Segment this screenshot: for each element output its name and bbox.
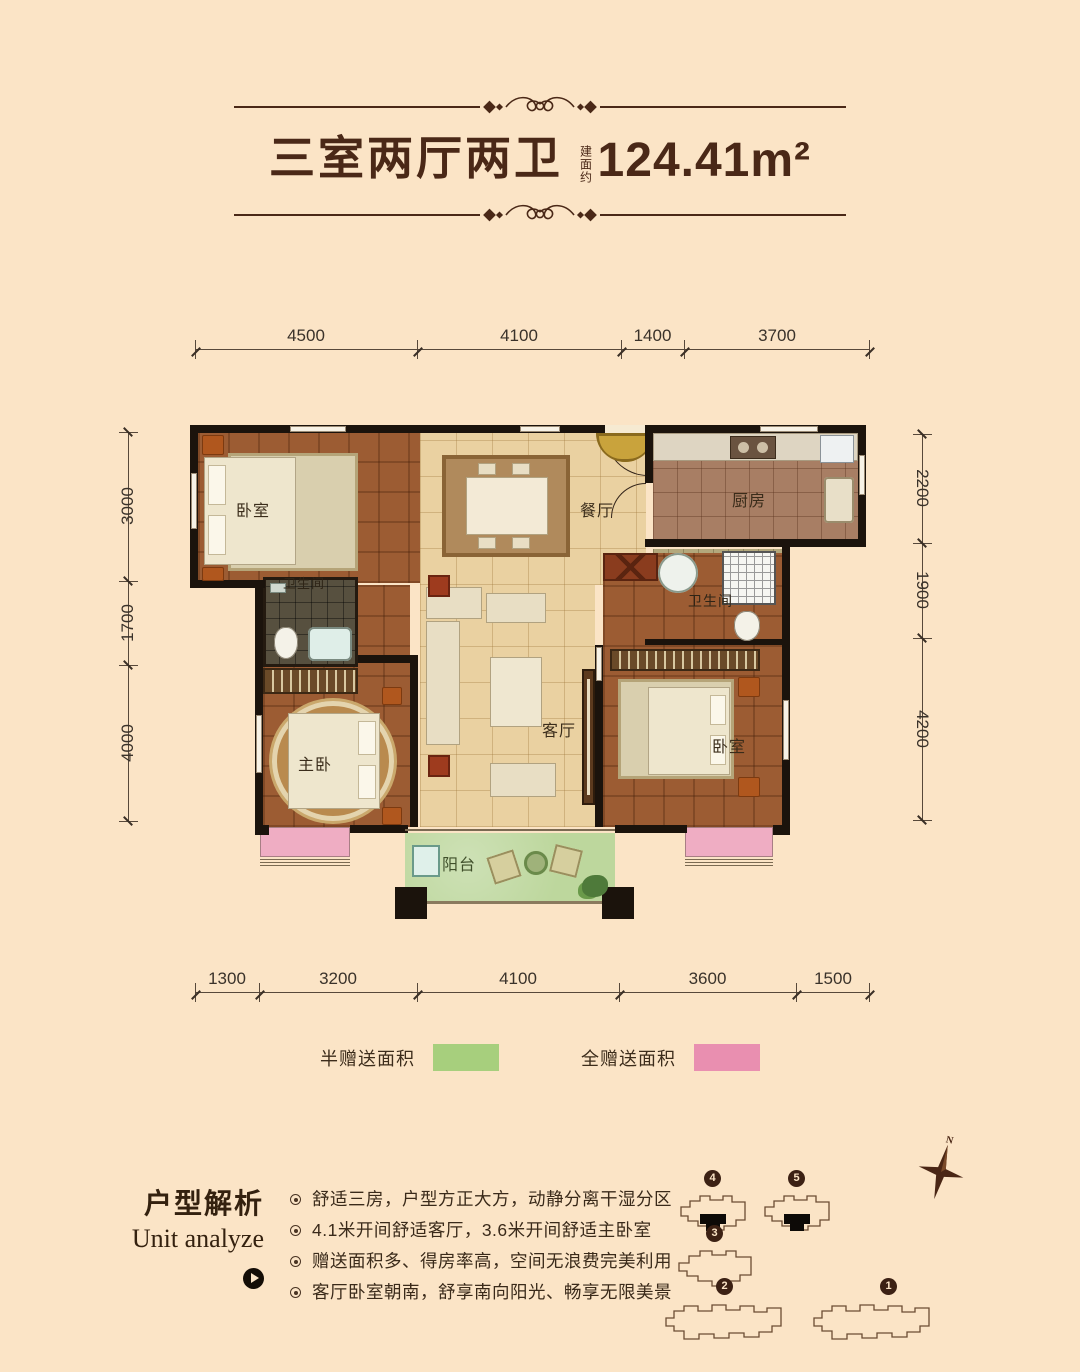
- dim-right-3: 4200: [912, 689, 932, 769]
- bullet-icon: [290, 1225, 301, 1236]
- balcony-plant: [582, 875, 608, 897]
- dim-bottom-4: 3600: [619, 969, 796, 989]
- bay-window-lines-right: [685, 859, 773, 866]
- gift-bay-right: [685, 827, 773, 857]
- living-coffee-table: [490, 657, 542, 727]
- window-top-kitchen: [760, 426, 818, 432]
- unit-title: 三室两厅两卫 建面约 124.41m²: [0, 122, 1080, 188]
- building-number-badge: 1: [880, 1278, 897, 1295]
- bedroom-tl-nightstand-1: [202, 435, 224, 455]
- dining-chair: [478, 537, 496, 549]
- building-number-badge: 2: [716, 1278, 733, 1295]
- balcony-table: [524, 851, 548, 875]
- kitchen-stove: [730, 436, 776, 459]
- balcony-post-left: [395, 887, 427, 919]
- dim-left-1: 3000: [118, 466, 138, 546]
- dim-top-2: 4100: [417, 326, 621, 346]
- label-kitchen: 厨房: [732, 487, 766, 511]
- unit-analysis-section: 户型解析 Unit analyze 舒适三房，户型方正大方，动静分离干湿分区 4…: [112, 1182, 672, 1308]
- building-number-badge: 5: [788, 1170, 805, 1187]
- window-top-dining: [520, 426, 560, 432]
- label-master-bedroom: 主卧: [298, 751, 332, 775]
- label-balcony: 阳台: [442, 851, 476, 875]
- bedroom-right-wardrobe: [610, 649, 760, 671]
- building-number-badge: 3: [706, 1225, 723, 1242]
- compass-icon: N: [906, 1130, 976, 1208]
- ornament-divider-bottom: [234, 200, 846, 230]
- balcony-threshold: [405, 829, 615, 831]
- label-bath-master: 卫生间: [688, 591, 733, 611]
- living-side-table-1: [428, 575, 450, 597]
- bedroom-tl-nightstand-2: [202, 567, 224, 581]
- label-bedroom-top-left: 卧室: [236, 497, 270, 521]
- gift-area-legend: 半赠送面积 全赠送面积: [0, 1044, 1080, 1071]
- bath-master-toilet: [734, 611, 760, 641]
- wall-kitchen-bottom-right: [782, 539, 866, 547]
- building-outline: [664, 1298, 784, 1348]
- label-bath-small: 卫生间: [283, 573, 325, 592]
- dim-top-1: 4500: [195, 326, 417, 346]
- site-building-5: 5: [762, 1170, 832, 1234]
- dim-right-2: 1900: [912, 550, 932, 630]
- living-sofa-small: [490, 763, 556, 797]
- analysis-bullets: 舒适三房，户型方正大方，动静分离干湿分区 4.1米开间舒适客厅，3.6米开间舒适…: [290, 1182, 672, 1308]
- bullet-icon: [290, 1287, 301, 1298]
- analysis-bullet-4: 客厅卧室朝南，舒享南向阳光、畅享无限美景: [290, 1277, 672, 1308]
- living-tv-console: [582, 669, 595, 805]
- site-building-1: 1: [812, 1278, 932, 1346]
- glass-living-bedroom: [596, 647, 602, 681]
- wall-right-lower: [782, 539, 790, 833]
- legend-half-gift-swatch: [433, 1044, 499, 1071]
- master-nightstand-2: [382, 807, 402, 825]
- wall-master-top: [358, 655, 418, 663]
- wall-bath-bedroom: [645, 639, 785, 645]
- unit-location-marker: [790, 1224, 804, 1231]
- wall-bottom-corner-left: [255, 825, 269, 835]
- dim-bottom-1: 1300: [195, 969, 259, 989]
- living-armchair: [486, 593, 546, 623]
- balcony-post-right: [602, 887, 634, 919]
- dimension-line-top: 4500 4100 1400 3700: [195, 322, 870, 360]
- play-icon: [243, 1268, 264, 1289]
- wall-bottom-left: [350, 825, 408, 833]
- unit-location-marker: [700, 1214, 726, 1224]
- analysis-bullet-1: 舒适三房，户型方正大方，动静分离干湿分区: [290, 1184, 672, 1215]
- wall-left-lower: [255, 580, 263, 835]
- bedroom-right-nightstand-1: [738, 677, 760, 697]
- kitchen-sink: [824, 477, 854, 523]
- dim-left-3: 4000: [118, 703, 138, 783]
- analysis-heading: 户型解析 Unit analyze: [112, 1182, 264, 1308]
- floor-plan: 卧室 餐厅 厨房 卫生间 卫生间 主卧 客厅 卧室 阳台: [190, 425, 866, 937]
- bath-small-tub: [308, 627, 352, 661]
- legend-full-gift-swatch: [694, 1044, 760, 1071]
- window-master-west: [256, 715, 262, 773]
- living-sofa-main: [426, 621, 460, 745]
- floorplan-poster: 三室两厅两卫 建面约 124.41m² 4500 4100 1400 3700 …: [0, 0, 1080, 1372]
- ornament-divider-top: [234, 92, 846, 122]
- label-dining: 餐厅: [580, 497, 614, 521]
- bullet-icon: [290, 1256, 301, 1267]
- dimension-line-right: 2200 1900 4200: [905, 434, 945, 821]
- dining-table: [466, 477, 548, 535]
- dim-top-4: 3700: [684, 326, 870, 346]
- wall-bottom-mid: [615, 825, 687, 833]
- building-number-badge: 4: [704, 1170, 721, 1187]
- unit-location-marker: [784, 1214, 810, 1224]
- legend-half-gift-label: 半赠送面积: [320, 1045, 415, 1071]
- dimension-line-left: 3000 1700 4000: [110, 432, 150, 822]
- wall-dining-kitchen: [645, 425, 653, 483]
- analysis-bullet-3: 赠送面积多、得房率高，空间无浪费完美利用: [290, 1246, 672, 1277]
- wall-master-living: [410, 655, 418, 827]
- dim-bottom-5: 1500: [796, 969, 870, 989]
- dim-bottom-3: 4100: [417, 969, 619, 989]
- bedroom-right-nightstand-2: [738, 777, 760, 797]
- dim-top-3: 1400: [621, 326, 684, 346]
- master-nightstand-1: [382, 687, 402, 705]
- dining-chair: [512, 537, 530, 549]
- dimension-line-bottom: 1300 3200 4100 3600 1500: [195, 965, 870, 1003]
- bay-window-lines-left: [260, 859, 350, 866]
- bedroom-right-bed: [648, 687, 730, 775]
- site-plan: N 4 5 3: [648, 1120, 998, 1360]
- label-living: 客厅: [542, 717, 576, 741]
- window-kitchen-east: [859, 455, 865, 495]
- analysis-title-zh: 户型解析: [112, 1182, 264, 1222]
- dim-left-2: 1700: [118, 583, 138, 663]
- master-wardrobe: [263, 668, 358, 694]
- analysis-bullet-2: 4.1米开间舒适客厅，3.6米开间舒适主卧室: [290, 1215, 672, 1246]
- wall-left-step: [190, 580, 265, 588]
- area-note-vertical: 建面约: [579, 145, 592, 184]
- dim-bottom-2: 3200: [259, 969, 417, 989]
- dim-line: [195, 992, 870, 993]
- entry-door-opening: [605, 425, 647, 433]
- balcony-washer: [412, 845, 440, 877]
- label-bedroom-right: 卧室: [712, 733, 746, 757]
- svg-text:N: N: [945, 1134, 955, 1147]
- area-value: 124.41m²: [598, 133, 811, 188]
- bath-small-toilet: [274, 627, 298, 659]
- bath-master-sink: [658, 553, 698, 593]
- dim-right-1: 2200: [912, 448, 932, 528]
- bullet-icon: [290, 1194, 301, 1205]
- kitchen-fridge: [820, 435, 854, 463]
- living-side-table-2: [428, 755, 450, 777]
- dining-chair: [478, 463, 496, 475]
- site-building-2: 2: [664, 1278, 784, 1346]
- window-top-bedroom: [290, 426, 346, 432]
- unit-type-title: 三室两厅两卫: [269, 122, 563, 188]
- dining-chair: [512, 463, 530, 475]
- window-bedroom-east: [783, 700, 789, 760]
- gift-bay-left: [260, 827, 350, 857]
- analysis-title-en: Unit analyze: [112, 1224, 264, 1254]
- dim-line: [195, 349, 870, 350]
- shoe-cabinet: [603, 553, 658, 581]
- window-left-bedroom: [191, 473, 197, 529]
- building-outline: [812, 1298, 932, 1348]
- legend-full-gift-label: 全赠送面积: [581, 1045, 676, 1071]
- balcony-rail: [427, 901, 602, 904]
- wall-kitchen-bath: [645, 539, 790, 547]
